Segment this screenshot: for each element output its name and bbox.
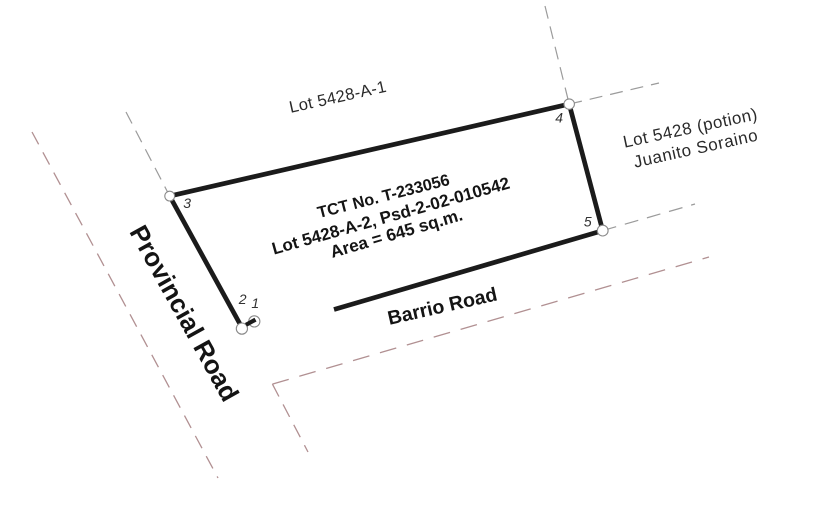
- svg-text:5: 5: [584, 213, 592, 229]
- svg-text:2: 2: [238, 291, 247, 307]
- svg-text:4: 4: [555, 109, 563, 125]
- svg-text:1: 1: [251, 295, 259, 311]
- svg-text:3: 3: [183, 195, 191, 211]
